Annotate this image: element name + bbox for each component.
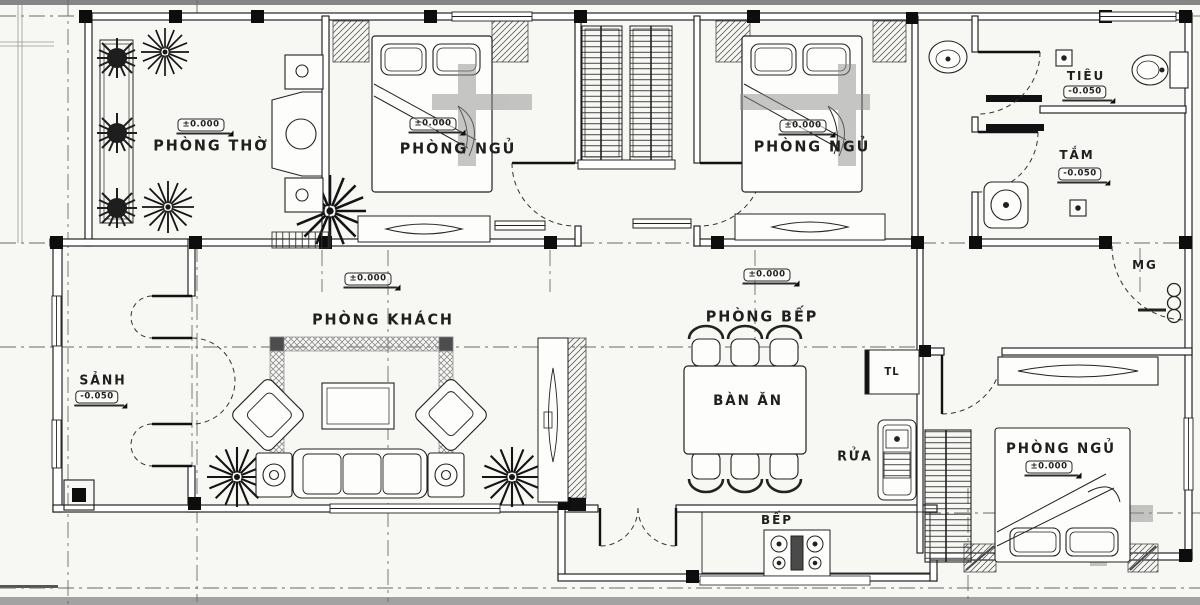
level-marker-phong-ngu-1: ±0.000 xyxy=(409,118,456,131)
stove-icon xyxy=(764,530,830,576)
coffee-table-icon xyxy=(322,383,394,429)
dining-set xyxy=(684,326,806,492)
level-marker-phong-ngu-3: ±0.000 xyxy=(1025,461,1072,474)
level-marker-phong-khach: ±0.000 xyxy=(344,273,391,286)
floor-plan-page: PHÒNG THỜ PHÒNG NGỦ PHÒNG NGỦ PHÒNG NGỦ … xyxy=(0,0,1200,605)
kitchen-sink-icon xyxy=(878,420,916,500)
level-marker-phong-ngu-2: ±0.000 xyxy=(779,120,826,133)
level-marker-phong-bep: ±0.000 xyxy=(743,269,790,282)
fixture-label-rua: RỬA xyxy=(837,451,872,464)
room-label-phong-tho: PHÒNG THỜ xyxy=(153,139,268,154)
level-marker-tam: -0.050 xyxy=(1058,168,1101,181)
dining-table-icon xyxy=(684,366,806,454)
room-label-phong-ngu-2: PHÒNG NGỦ xyxy=(754,140,871,155)
threshold-grille xyxy=(272,232,330,248)
room-label-tam: TẮM xyxy=(1059,149,1094,162)
fixture-label-tl: TL xyxy=(884,367,899,378)
level-marker-phong-tho: ±0.000 xyxy=(177,119,224,132)
room-label-phong-khach: PHÒNG KHÁCH xyxy=(312,313,454,328)
sofa-icon xyxy=(293,449,427,498)
floor-plan-drawing xyxy=(0,0,1200,605)
room-label-phong-ngu-1: PHÒNG NGỦ xyxy=(400,142,517,157)
room-label-sanh: SẢNH xyxy=(79,375,126,388)
tv-cabinet-icon xyxy=(538,338,568,502)
room-label-tieu: TIÊU xyxy=(1067,70,1105,83)
room-label-phong-bep: PHÒNG BẾP xyxy=(706,310,818,325)
fixture-label-mg: MG xyxy=(1132,259,1158,272)
dresser-3-icon xyxy=(998,357,1158,385)
side-table-left-icon xyxy=(256,453,292,497)
room-label-phong-ngu-3: PHÒNG NGỦ xyxy=(1006,442,1116,456)
level-marker-tieu: -0.050 xyxy=(1063,86,1106,99)
wardrobe-icon xyxy=(925,430,971,562)
toilet-icon xyxy=(1132,52,1188,88)
shower-basin-icon xyxy=(984,182,1028,228)
fixture-label-ban-an: BÀN ĂN xyxy=(713,394,783,408)
fixture-label-bep: BẾP xyxy=(761,514,793,527)
side-table-right-icon xyxy=(428,453,464,497)
level-marker-sanh: -0.050 xyxy=(75,391,118,404)
counter-tray xyxy=(700,576,870,585)
